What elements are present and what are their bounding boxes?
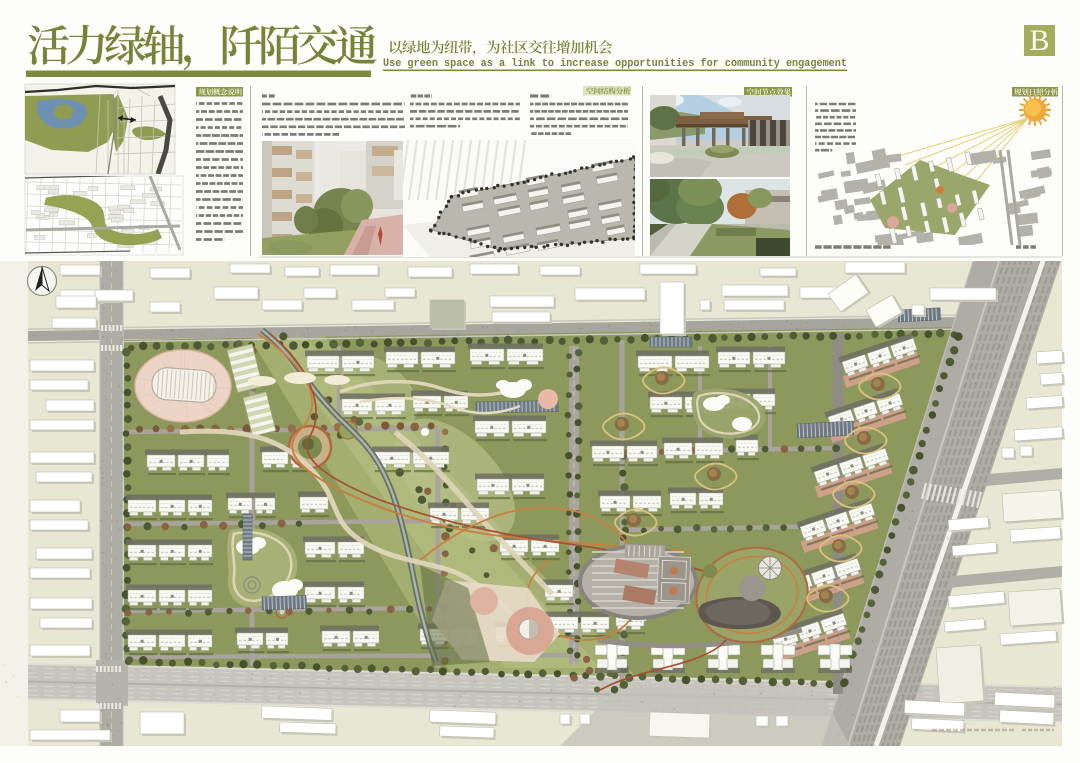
svg-text:B: B [1029,24,1049,57]
svg-text:Use green space as a link to i: Use green space as a link to increase op… [383,58,847,70]
